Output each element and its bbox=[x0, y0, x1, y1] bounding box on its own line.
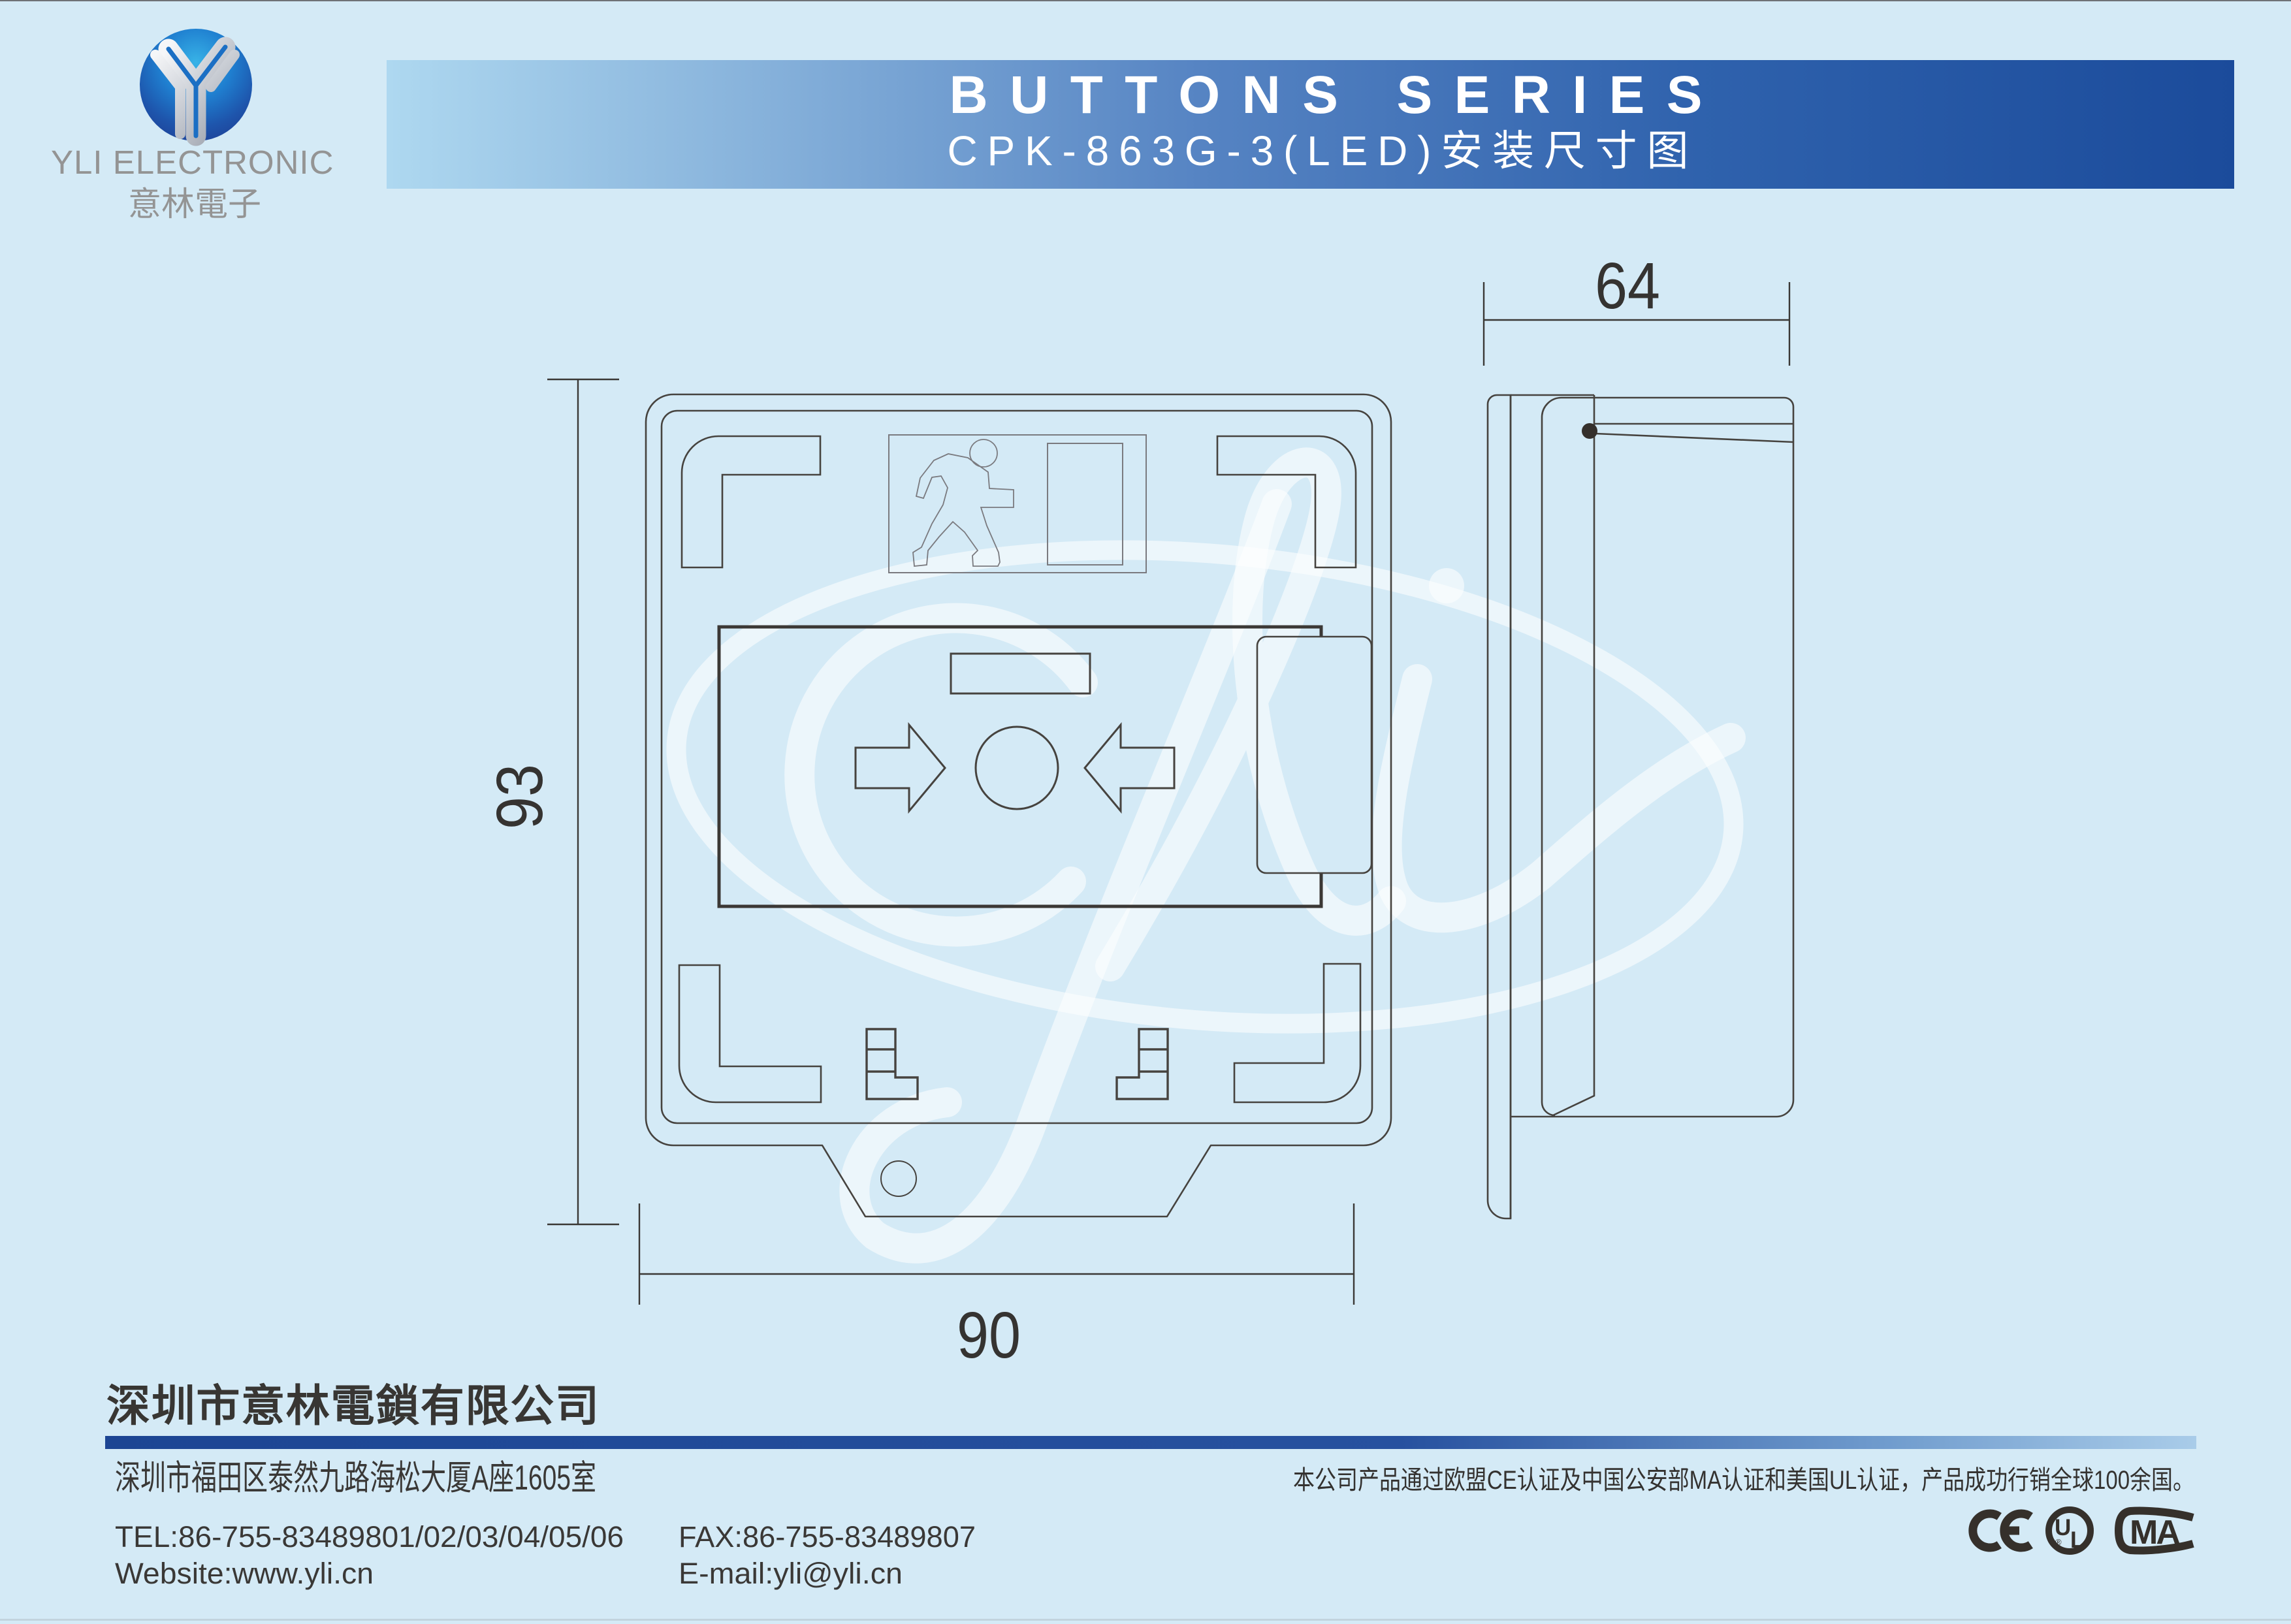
svg-text:E-mail:yli@yli.cn: E-mail:yli@yli.cn bbox=[679, 1557, 903, 1590]
svg-text:意林電子: 意林電子 bbox=[128, 185, 261, 223]
svg-text:YLI ELECTRONIC: YLI ELECTRONIC bbox=[51, 144, 334, 181]
svg-text:L: L bbox=[2070, 1527, 2084, 1553]
svg-text:93: 93 bbox=[483, 764, 556, 829]
svg-text:90: 90 bbox=[957, 1299, 1021, 1372]
svg-text:64: 64 bbox=[1595, 249, 1660, 323]
svg-text:FAX:86-755-83489807: FAX:86-755-83489807 bbox=[679, 1520, 976, 1553]
svg-text:TEL:86-755-83489801/02/03/04/0: TEL:86-755-83489801/02/03/04/05/06 bbox=[115, 1520, 624, 1553]
svg-text:深圳市福田区泰然九路海松大厦A座1605室: 深圳市福田区泰然九路海松大厦A座1605室 bbox=[115, 1459, 596, 1497]
svg-text:®: ® bbox=[2055, 1537, 2062, 1547]
svg-text:深圳市意林電鎖有限公司: 深圳市意林電鎖有限公司 bbox=[106, 1382, 599, 1431]
svg-text:本公司产品通过欧盟CE认证及中国公安部MA认证和美国UL认证: 本公司产品通过欧盟CE认证及中国公安部MA认证和美国UL认证，产品成功行销全球1… bbox=[1293, 1466, 2194, 1495]
svg-text:Website:www.yli.cn: Website:www.yli.cn bbox=[115, 1557, 374, 1590]
svg-text:MA: MA bbox=[2130, 1514, 2180, 1552]
